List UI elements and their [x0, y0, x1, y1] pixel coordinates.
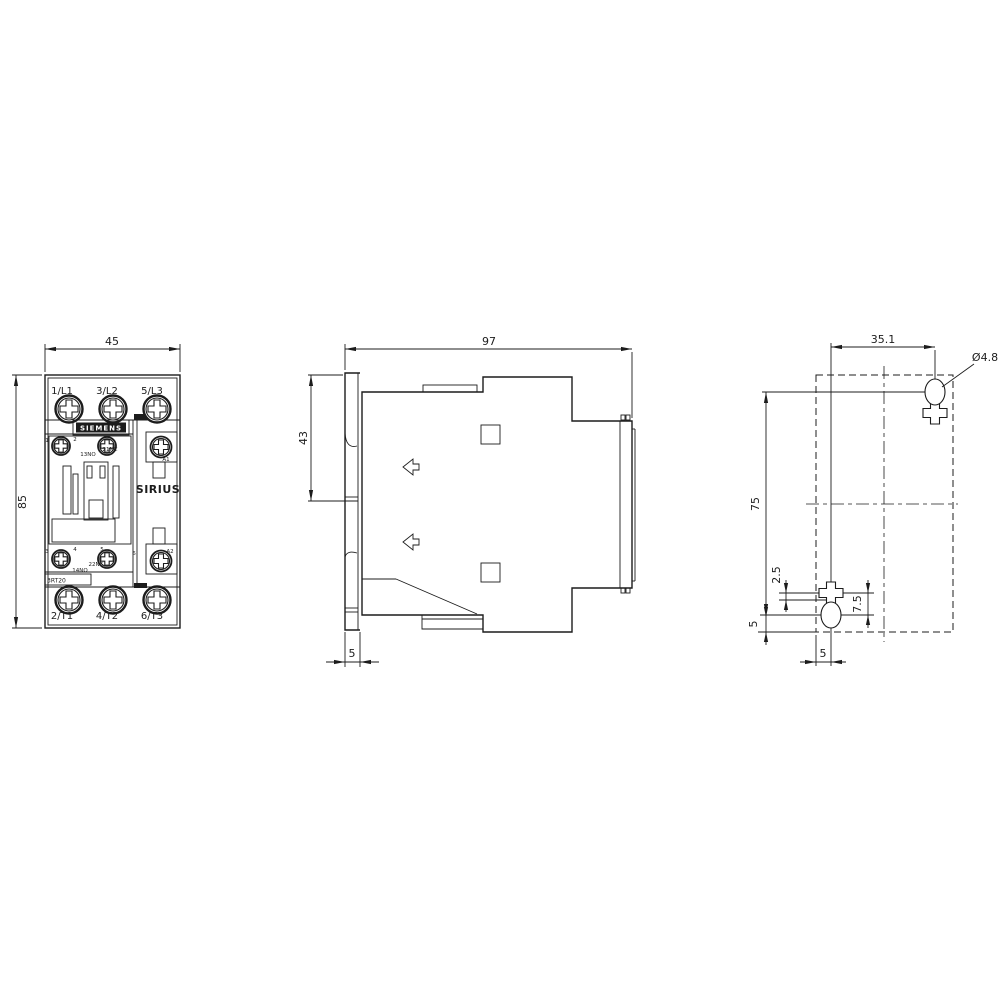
front-view-mechanism [52, 462, 119, 542]
din-rail-bracket [345, 373, 360, 630]
front-clip-mark [621, 588, 625, 593]
dimension-width-45: 45 [45, 335, 180, 372]
terminal-screw-1L1 [56, 396, 83, 423]
terminal-label-1L1: 1/L1 [51, 386, 73, 397]
aux-label-13no: 13NO [80, 452, 96, 458]
dim-97-label: 97 [482, 335, 496, 348]
arrowhead [784, 600, 788, 610]
coil-screw-a1 [151, 437, 172, 458]
side-recess-bottom [481, 563, 500, 582]
arrowhead [334, 660, 345, 664]
arrowhead [866, 583, 870, 593]
front-view: SIEMENS 1/L1 3/L2 5/L3 2/T1 4/T2 6/T3 1 … [12, 335, 180, 628]
arrowhead [360, 660, 371, 664]
side-body [362, 377, 635, 632]
drill-construction-lines [758, 343, 935, 666]
dim-45-label: 45 [105, 335, 119, 348]
dimension-35-1: 35.1 [831, 333, 935, 349]
arrowhead [764, 632, 768, 642]
arrowhead [309, 490, 313, 501]
arrowhead [924, 345, 935, 349]
arrowhead [621, 347, 632, 351]
arrowhead [784, 583, 788, 593]
dimension-5-bottom: 5 [800, 647, 846, 664]
coil-label-a2: A2 [166, 549, 173, 555]
arrowhead [764, 392, 768, 403]
aux-screw-14 [52, 550, 70, 568]
terminal-screw-4T2 [100, 587, 127, 614]
aux-pin-5: 5 [100, 547, 104, 553]
aux-pin-3: 3 [45, 549, 49, 555]
front-clip-mark [626, 415, 630, 420]
dimension-drawing-page: SIEMENS 1/L1 3/L2 5/L3 2/T1 4/T2 6/T3 1 … [0, 0, 1000, 1000]
side-view: 97 43 5 [297, 335, 635, 667]
aux-label-14no: 14NO [72, 568, 88, 574]
model-label: 3RT20 [47, 578, 66, 585]
side-recess-top [481, 425, 500, 444]
aux-pin-2: 2 [73, 437, 77, 443]
dimension-43: 43 [297, 375, 358, 501]
hole-diameter-label: Ø4.8 [972, 351, 998, 364]
dim-85-label: 85 [16, 495, 29, 509]
siemens-logo: SIEMENS [73, 420, 129, 435]
arrowhead [764, 607, 768, 617]
release-lever-icon [403, 459, 419, 475]
dim-43-label: 43 [297, 431, 310, 445]
dim-75-label: 75 [749, 497, 762, 511]
dim-2-5-label: 2.5 [770, 566, 783, 584]
terminal-screw-3L2 [100, 396, 127, 423]
arrowhead [169, 347, 180, 351]
arrowhead [831, 345, 842, 349]
arrowhead [14, 375, 18, 386]
hole-diameter-callout: Ø4.8 [942, 351, 998, 387]
release-lever-icon [403, 534, 419, 550]
aux-pin-1: 1 [45, 438, 49, 444]
terminal-label-3L2: 3/L2 [96, 386, 118, 397]
aux-label-22nc: 22NC [89, 562, 104, 568]
dimension-5-left: 5 [747, 607, 768, 645]
aux-pin-4: 4 [73, 547, 77, 553]
dim-7-5-label: 7.5 [851, 595, 864, 613]
terminal-screw-2T1 [56, 587, 83, 614]
dimension-75: 75 [749, 392, 768, 615]
brand-label: SIEMENS [80, 425, 122, 433]
aux-screw-13 [52, 437, 70, 455]
arrowhead [831, 660, 842, 664]
aux-pin-6: 6 [132, 551, 136, 557]
dim-5-bottom-label: 5 [820, 647, 827, 660]
front-clip-mark [626, 588, 630, 593]
terminal-screw-5L3 [144, 396, 171, 423]
dim-5-left-label: 5 [747, 621, 760, 628]
arrowhead [866, 615, 870, 625]
terminal-screw-6T3 [144, 587, 171, 614]
dimension-2-5: 2.5 [770, 566, 788, 612]
dim-5-rail-label: 5 [349, 647, 356, 660]
leader-line [942, 364, 974, 387]
dimension-height-85: 85 [12, 375, 42, 628]
dim-35-1-label: 35.1 [871, 333, 896, 346]
coil-label-a1: A1 [162, 457, 169, 463]
arrowhead [805, 660, 816, 664]
arrowhead [45, 347, 56, 351]
dimension-drawing: SIEMENS 1/L1 3/L2 5/L3 2/T1 4/T2 6/T3 1 … [0, 0, 1000, 1000]
terminal-label-4T2: 4/T2 [96, 611, 118, 622]
front-clip-mark [621, 415, 625, 420]
arrowhead [309, 375, 313, 386]
terminal-label-2T1: 2/T1 [51, 611, 73, 622]
arrowhead [345, 347, 356, 351]
series-label: SIRIUS [136, 483, 180, 496]
terminal-label-6T3: 6/T3 [141, 611, 163, 622]
dimension-rail-5: 5 [326, 632, 379, 667]
aux-label-21nc: 21NC [103, 447, 118, 453]
terminal-label-5L3: 5/L3 [141, 386, 163, 397]
arrowhead [14, 617, 18, 628]
model-plate: 3RT20 [45, 574, 91, 585]
dimension-7-5: 7.5 [851, 580, 870, 628]
keyhole-bottom [819, 582, 843, 628]
drilling-plan-view: 35.1 Ø4.8 75 2.5 7.5 5 [747, 333, 998, 666]
